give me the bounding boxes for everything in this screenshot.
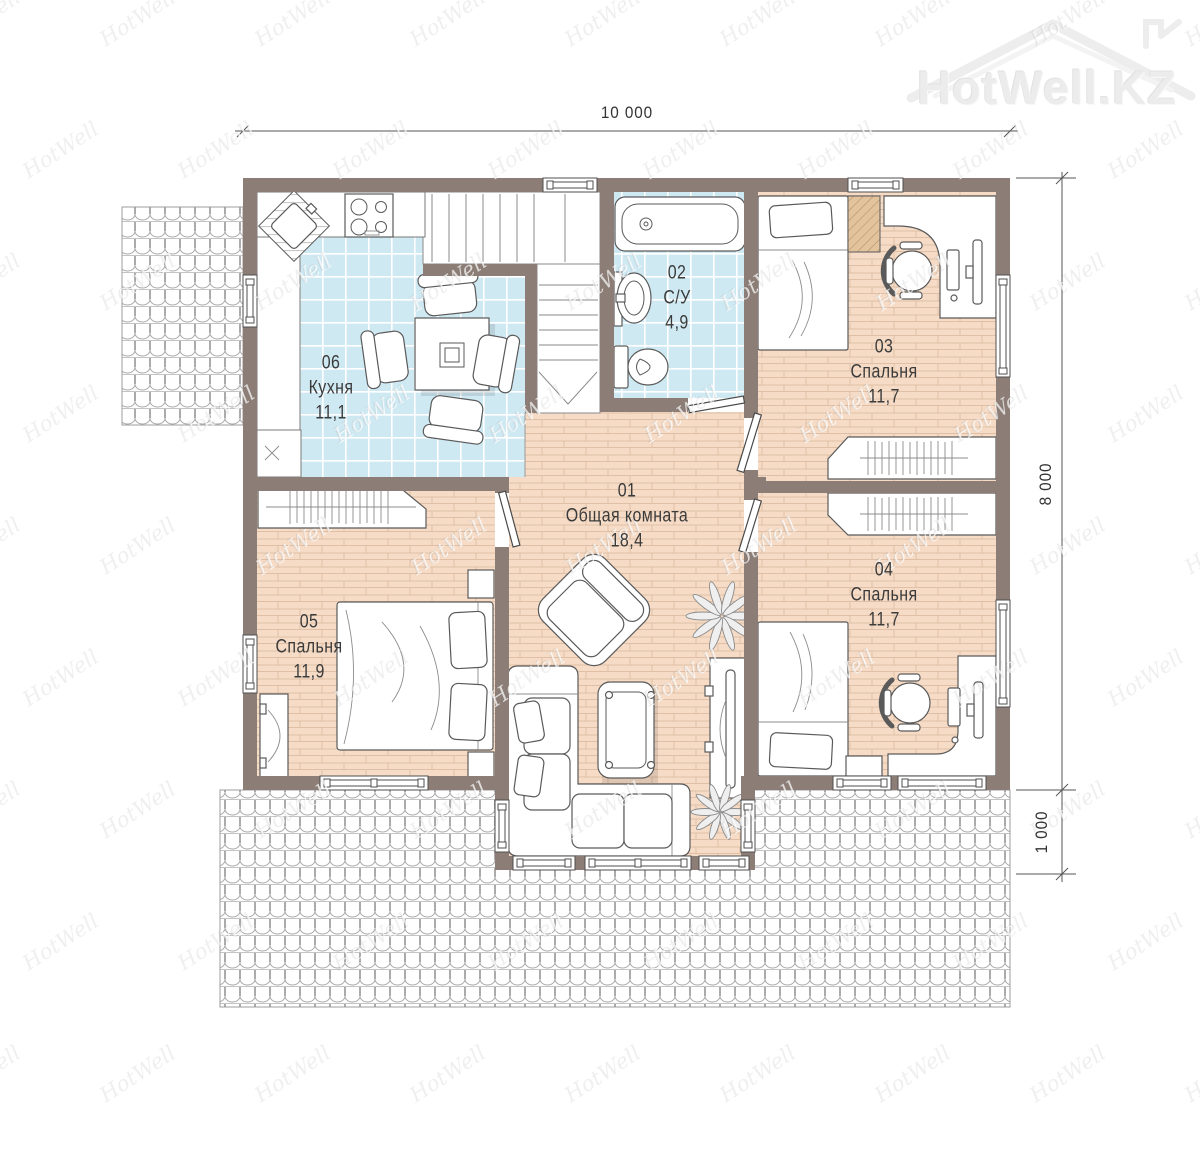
room-area: 11,9: [275, 660, 342, 685]
room-number: 01: [566, 478, 688, 503]
window-icon: [699, 856, 749, 870]
room-label-common: 01 Общая комната 18,4: [566, 478, 688, 553]
room-area: 11,1: [309, 401, 354, 426]
coffee-table-icon: [598, 682, 658, 783]
dresser-icon: [260, 694, 288, 778]
room-name: Общая комната: [566, 503, 688, 528]
wardrobe-icon: [258, 486, 426, 528]
dining-chair-icon: [417, 269, 481, 317]
wardrobe-icon: [828, 493, 996, 535]
dimension-width-label: 10 000: [601, 103, 653, 123]
room-area: 4,9: [663, 311, 690, 336]
cabinet-icon: [848, 196, 880, 252]
room-name: Спальня: [275, 634, 342, 659]
window-icon: [833, 776, 891, 790]
room-label-bedroom-05: 05 Спальня 11,9: [275, 609, 342, 684]
floor-plan-canvas: HotWell.KZ HotWellHotWellHotWellHotWellH…: [0, 0, 1200, 1160]
wardrobe-icon: [828, 437, 996, 479]
window-icon: [848, 178, 903, 192]
room-area: 11,7: [850, 608, 917, 633]
kitchen-counter-left: [257, 237, 300, 430]
dimension-height-main-label: 8 000: [1036, 463, 1056, 506]
window-icon: [513, 856, 575, 870]
floor-plan-drawing: [0, 0, 1200, 1160]
nightstand-icon: [468, 752, 494, 780]
double-bed-icon: [337, 602, 493, 750]
room-label-kitchen: 06 Кухня 11,1: [309, 350, 354, 425]
room-label-bedroom-04: 04 Спальня 11,7: [850, 557, 917, 632]
window-icon: [543, 178, 597, 192]
room-area: 18,4: [566, 529, 688, 554]
room-label-bathroom: 02 С/У 4,9: [663, 260, 690, 335]
room-label-bedroom-03: 03 Спальня 11,7: [850, 334, 917, 409]
bathtub-icon: [615, 197, 745, 251]
dimension-top: [235, 125, 1018, 137]
bed-icon: [758, 622, 848, 776]
room-number: 03: [850, 334, 917, 359]
dimension-right: [1016, 172, 1076, 882]
appliance-icon: [257, 430, 301, 477]
room-name: С/У: [663, 285, 690, 310]
window-icon: [585, 856, 691, 870]
window-icon: [741, 800, 755, 852]
tv-stand-icon: [705, 658, 746, 798]
roof-left: [122, 207, 243, 425]
toilet-icon: [614, 346, 668, 388]
room-name: Кухня: [309, 375, 354, 400]
dining-chair-icon: [423, 394, 488, 445]
room-name: Спальня: [850, 359, 917, 384]
nightstand-icon: [468, 570, 494, 598]
window-icon: [898, 776, 986, 790]
dining-chair-icon: [360, 326, 410, 389]
window-icon: [243, 275, 257, 327]
window-icon: [243, 635, 257, 693]
window-icon: [996, 600, 1010, 707]
room-area: 11,7: [850, 385, 917, 410]
room-number: 06: [309, 350, 354, 375]
side-table-icon: [846, 756, 882, 776]
room-number: 05: [275, 609, 342, 634]
window-icon: [996, 275, 1010, 377]
room-number: 04: [850, 557, 917, 582]
bed-icon: [758, 196, 848, 350]
window-icon: [495, 800, 509, 852]
window-icon: [320, 776, 428, 790]
dimension-height-bay-label: 1 000: [1032, 811, 1052, 854]
room-name: Спальня: [850, 582, 917, 607]
stove-icon: [345, 194, 393, 237]
room-number: 02: [663, 260, 690, 285]
